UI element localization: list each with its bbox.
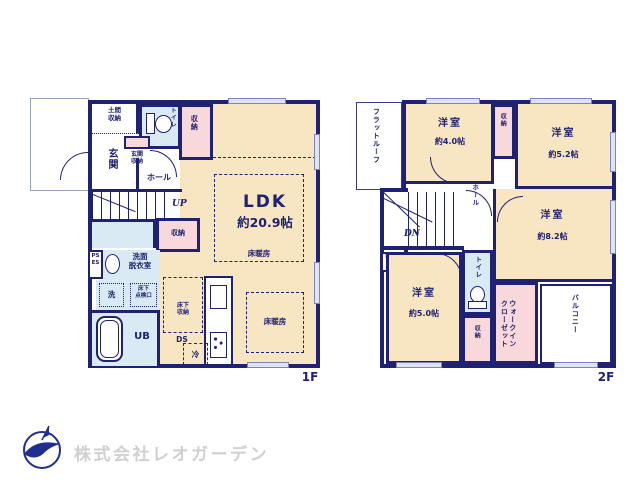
window-marker: [610, 132, 616, 172]
floor-heating-label-a: 床暖房: [214, 249, 304, 258]
bird-logo-icon: [16, 422, 68, 474]
company-name: 株式会社レオガーデン: [74, 440, 269, 465]
closet-top-label-2f: 収納: [499, 113, 506, 127]
closet-mid-label: 収納: [156, 229, 200, 237]
closet-top-label-1f: 収納: [190, 115, 198, 131]
window-marker: [554, 362, 598, 368]
floorplan-canvas: 土間 収納 トイレ 収納 玄関 玄関 収納 ホール UP 収納 PS ES 洗面…: [0, 0, 640, 480]
bedroom-52-name: 洋室: [515, 128, 612, 140]
ldk-size-label: 約20.9帖: [214, 215, 316, 230]
window-marker: [396, 362, 442, 368]
bedroom-50-name: 洋室: [386, 288, 462, 300]
window-marker: [610, 200, 616, 254]
fridge-label: 冷: [183, 350, 208, 359]
doma-storage-label: 土間 収納: [92, 107, 137, 123]
floor2-label: 2F: [594, 370, 618, 384]
ps-es-label: PS ES: [88, 253, 103, 266]
window-marker: [426, 98, 480, 104]
toilet-icon: [146, 113, 155, 134]
bedroom-40-size: 約4.0帖: [406, 137, 494, 147]
laundry-label: 洗: [96, 290, 127, 299]
window-marker: [314, 134, 320, 170]
closet-top-1f: [179, 104, 213, 160]
toilet-tank-icon-2f: [468, 301, 487, 309]
window-marker: [247, 362, 289, 368]
underfloor-storage-label: 床下 収納: [166, 302, 200, 316]
window-marker: [228, 98, 286, 104]
balcony-label: バルコニー: [571, 294, 579, 334]
walk-in-closet-label: ウォークイン クローゼット: [500, 288, 517, 360]
ldk-ceiling-line: [213, 157, 316, 158]
stove-icon: [210, 332, 227, 358]
closet-bottom-label-2f: 収納: [473, 325, 480, 339]
company-logo: [16, 422, 68, 474]
bathtub-icon: [96, 316, 123, 362]
stairs-up-label: UP: [172, 199, 187, 210]
toilet-label-1f: トイレ: [169, 107, 176, 128]
genkan-closet-box: [124, 136, 150, 149]
kitchen-sink-icon: [210, 285, 227, 309]
flat-roof-label: フラットルーフ: [372, 108, 380, 164]
wall-ub-right: [157, 310, 160, 366]
wall-below-stairs-2f: [380, 246, 464, 250]
floor1-label: 1F: [298, 370, 322, 384]
washbasin-icon: [105, 254, 120, 274]
window-marker: [314, 262, 320, 304]
genkan-closet-label: 玄関 収納: [122, 151, 152, 165]
window-marker: [530, 98, 592, 104]
understairs-room: [92, 222, 156, 248]
floor-hatch-label: 床下 点検口: [130, 286, 157, 299]
stairs-1f: [92, 192, 172, 219]
unit-bath-label: UB: [126, 331, 158, 343]
bedroom-82-size: 約8.2帖: [493, 232, 612, 242]
bedroom-40-name: 洋室: [406, 118, 494, 130]
genkan-label: 玄関: [105, 148, 117, 170]
bedroom-52: [515, 104, 612, 189]
bedroom-50-size: 約5.0帖: [386, 309, 462, 319]
toilet-label-2f: トイレ: [473, 256, 481, 279]
closet-bottom-2f: [462, 315, 493, 364]
floor-heating-label-b: 床暖房: [246, 317, 304, 326]
ldk-name-label: LDK: [214, 192, 316, 212]
washroom-label: 洗面 脱衣室: [119, 252, 161, 270]
bedroom-52-size: 約5.2帖: [515, 150, 612, 160]
stairs-dn-label: DN: [404, 229, 420, 240]
